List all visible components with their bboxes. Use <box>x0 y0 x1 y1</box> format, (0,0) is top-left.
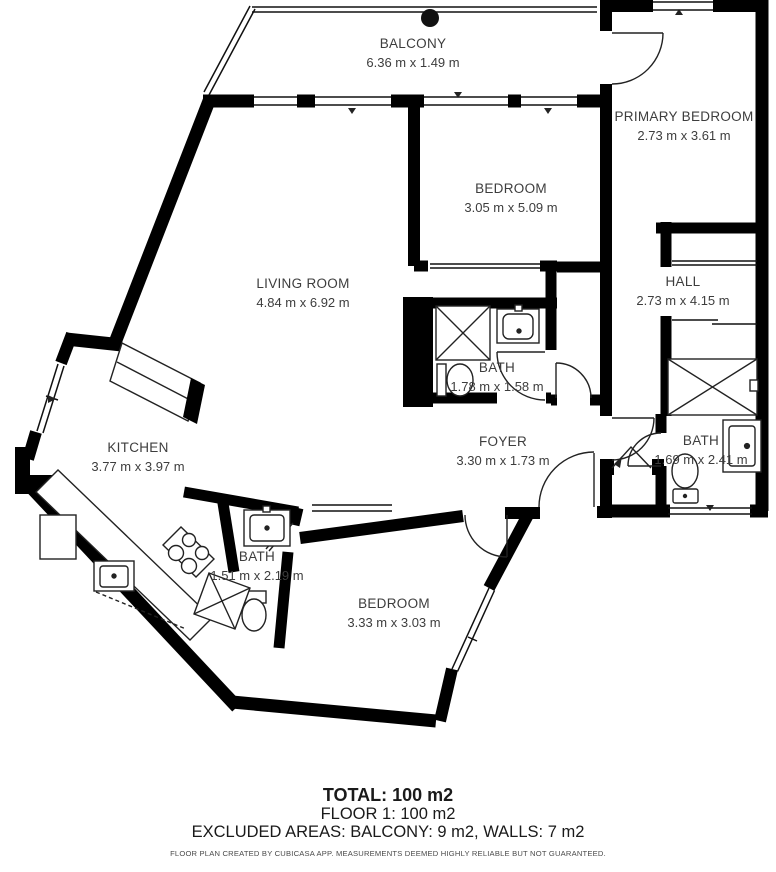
room-dims: 6.36 m x 1.49 m <box>366 53 459 72</box>
room-name: BATH <box>210 547 303 566</box>
room-name: KITCHEN <box>91 438 184 457</box>
room-name: BATH <box>450 358 543 377</box>
excluded-areas-text: EXCLUDED AREAS: BALCONY: 9 m2, WALLS: 7 … <box>0 823 776 842</box>
room-label-balcony: BALCONY 6.36 m x 1.49 m <box>366 34 459 72</box>
disclaimer-text: FLOOR PLAN CREATED BY CUBICASA APP. MEAS… <box>0 849 776 858</box>
bathtub-icon <box>668 359 758 415</box>
room-dims: 1.51 m x 2.19 m <box>210 566 303 585</box>
door-primary-bedroom <box>612 33 663 84</box>
room-label-living-room: LIVING ROOM 4.84 m x 6.92 m <box>256 274 349 312</box>
floor-area-text: FLOOR 1: 100 m2 <box>0 805 776 823</box>
room-label-bath-small: BATH 1.51 m x 2.19 m <box>210 547 303 585</box>
room-label-bath-center: BATH 1.78 m x 1.58 m <box>450 358 543 396</box>
room-name: HALL <box>636 272 729 291</box>
room-dims: 2.73 m x 3.61 m <box>614 126 753 145</box>
room-label-primary-bedroom: PRIMARY BEDROOM 2.73 m x 3.61 m <box>614 107 753 145</box>
room-label-bath-right: BATH 1.69 m x 2.41 m <box>654 431 747 469</box>
room-name: BEDROOM <box>464 179 557 198</box>
total-area-text: TOTAL: 100 m2 <box>0 786 776 805</box>
room-name: BALCONY <box>366 34 459 53</box>
sink-icon <box>497 305 539 343</box>
kitchen-peninsula <box>110 343 205 424</box>
room-name: LIVING ROOM <box>256 274 349 293</box>
door-hall <box>612 418 654 460</box>
room-dims: 1.78 m x 1.58 m <box>450 377 543 396</box>
room-name: FOYER <box>456 432 549 451</box>
door-corridor <box>556 363 591 398</box>
room-dims: 3.30 m x 1.73 m <box>456 451 549 470</box>
room-label-kitchen: KITCHEN 3.77 m x 3.97 m <box>91 438 184 476</box>
room-dims: 4.84 m x 6.92 m <box>256 293 349 312</box>
shower-icon <box>436 306 490 360</box>
stove-icon <box>163 527 214 577</box>
small-bath-sink-icon <box>244 506 290 546</box>
balcony-dot <box>421 9 439 27</box>
room-name: BATH <box>654 431 747 450</box>
floor-plan-page: BALCONY 6.36 m x 1.49 m PRIMARY BEDROOM … <box>0 0 776 872</box>
room-dims: 3.33 m x 3.03 m <box>347 613 440 632</box>
room-dims: 3.77 m x 3.97 m <box>91 457 184 476</box>
room-label-bedroom-top: BEDROOM 3.05 m x 5.09 m <box>464 179 557 217</box>
room-dims: 3.05 m x 5.09 m <box>464 198 557 217</box>
area-summary: TOTAL: 100 m2 FLOOR 1: 100 m2 EXCLUDED A… <box>0 786 776 858</box>
room-label-bedroom-bottom: BEDROOM 3.33 m x 3.03 m <box>347 594 440 632</box>
room-label-foyer: FOYER 3.30 m x 1.73 m <box>456 432 549 470</box>
room-label-hall: HALL 2.73 m x 4.15 m <box>636 272 729 310</box>
room-name: PRIMARY BEDROOM <box>614 107 753 126</box>
door-bedroom-bottom <box>465 515 507 557</box>
room-name: BEDROOM <box>347 594 440 613</box>
room-dims: 1.69 m x 2.41 m <box>654 450 747 469</box>
room-dims: 2.73 m x 4.15 m <box>636 291 729 310</box>
kitchen-sink-icon <box>94 561 134 591</box>
